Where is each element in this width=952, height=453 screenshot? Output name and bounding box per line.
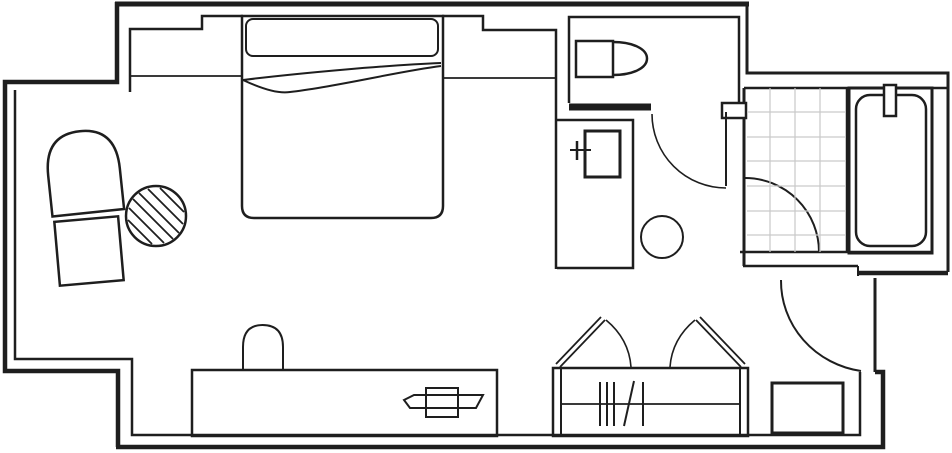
desk [192, 370, 497, 436]
floor-plan [0, 0, 952, 453]
closet [553, 368, 748, 436]
bath-door-arc [652, 114, 726, 188]
bathtub-inner [856, 95, 926, 246]
toilet-bowl [613, 42, 647, 75]
closet-door-right [696, 317, 745, 367]
armchair [44, 127, 124, 216]
toilet-tank [576, 41, 613, 77]
wall-inner-left [15, 90, 860, 435]
entry-door-arc [781, 280, 861, 371]
luggage-rack [772, 383, 843, 433]
side-table-hatch [128, 188, 184, 244]
shower-tile-grid [747, 88, 845, 252]
desk-chair [243, 325, 283, 371]
closet-door-left [556, 317, 605, 367]
wall-outer-left [5, 2, 118, 447]
wall-inner-top-right [442, 16, 556, 269]
bathtub-faucet [884, 85, 896, 116]
bed-headboard [246, 19, 438, 56]
tv-stand [426, 388, 458, 417]
closet-door-right-arc [670, 320, 695, 367]
floor-plan-svg [0, 0, 952, 453]
shower-door-arc [745, 178, 819, 252]
vanity-sink [585, 131, 620, 177]
stool [641, 216, 683, 258]
closet-door-left-arc [606, 320, 631, 367]
ottoman [54, 216, 123, 285]
bed [242, 16, 443, 218]
side-table [126, 186, 186, 246]
wall-inner-top-left [130, 16, 243, 92]
tv [404, 395, 483, 408]
